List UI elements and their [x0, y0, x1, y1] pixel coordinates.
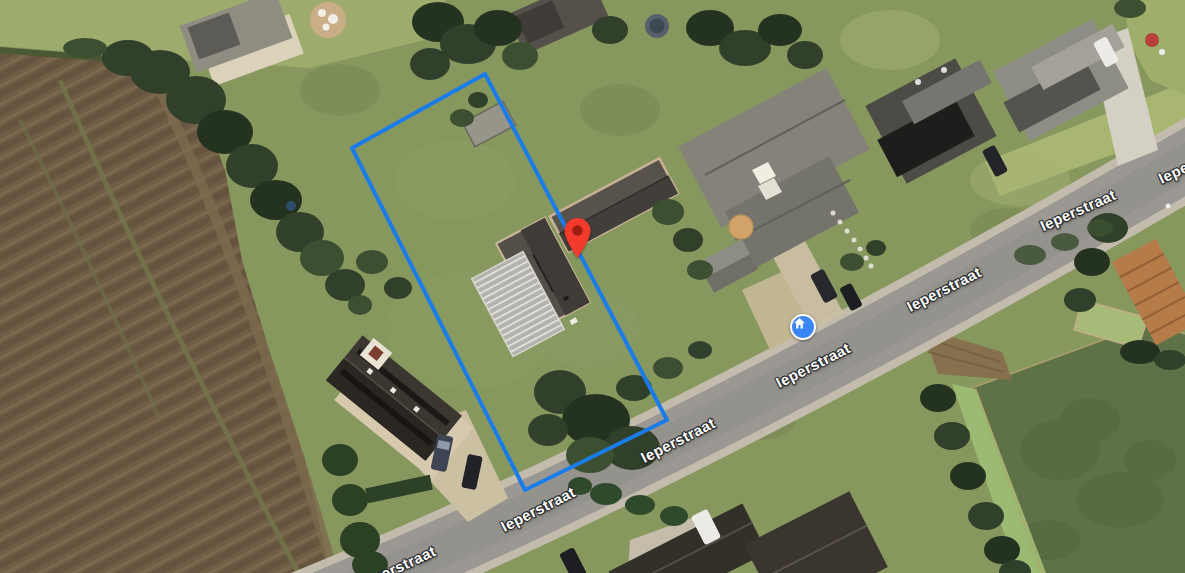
home-marker[interactable] — [790, 314, 816, 340]
pin-body — [564, 218, 590, 258]
parcel-overlay — [0, 0, 1185, 573]
pin-dot — [572, 225, 582, 235]
place-pin[interactable] — [563, 217, 592, 259]
home-icon — [792, 316, 807, 331]
map-canvas[interactable]: IeperstraatIeperstraatIeperstraatIeperst… — [0, 0, 1185, 573]
parcel-polygon[interactable] — [352, 74, 667, 490]
map-pin-icon — [563, 217, 592, 259]
